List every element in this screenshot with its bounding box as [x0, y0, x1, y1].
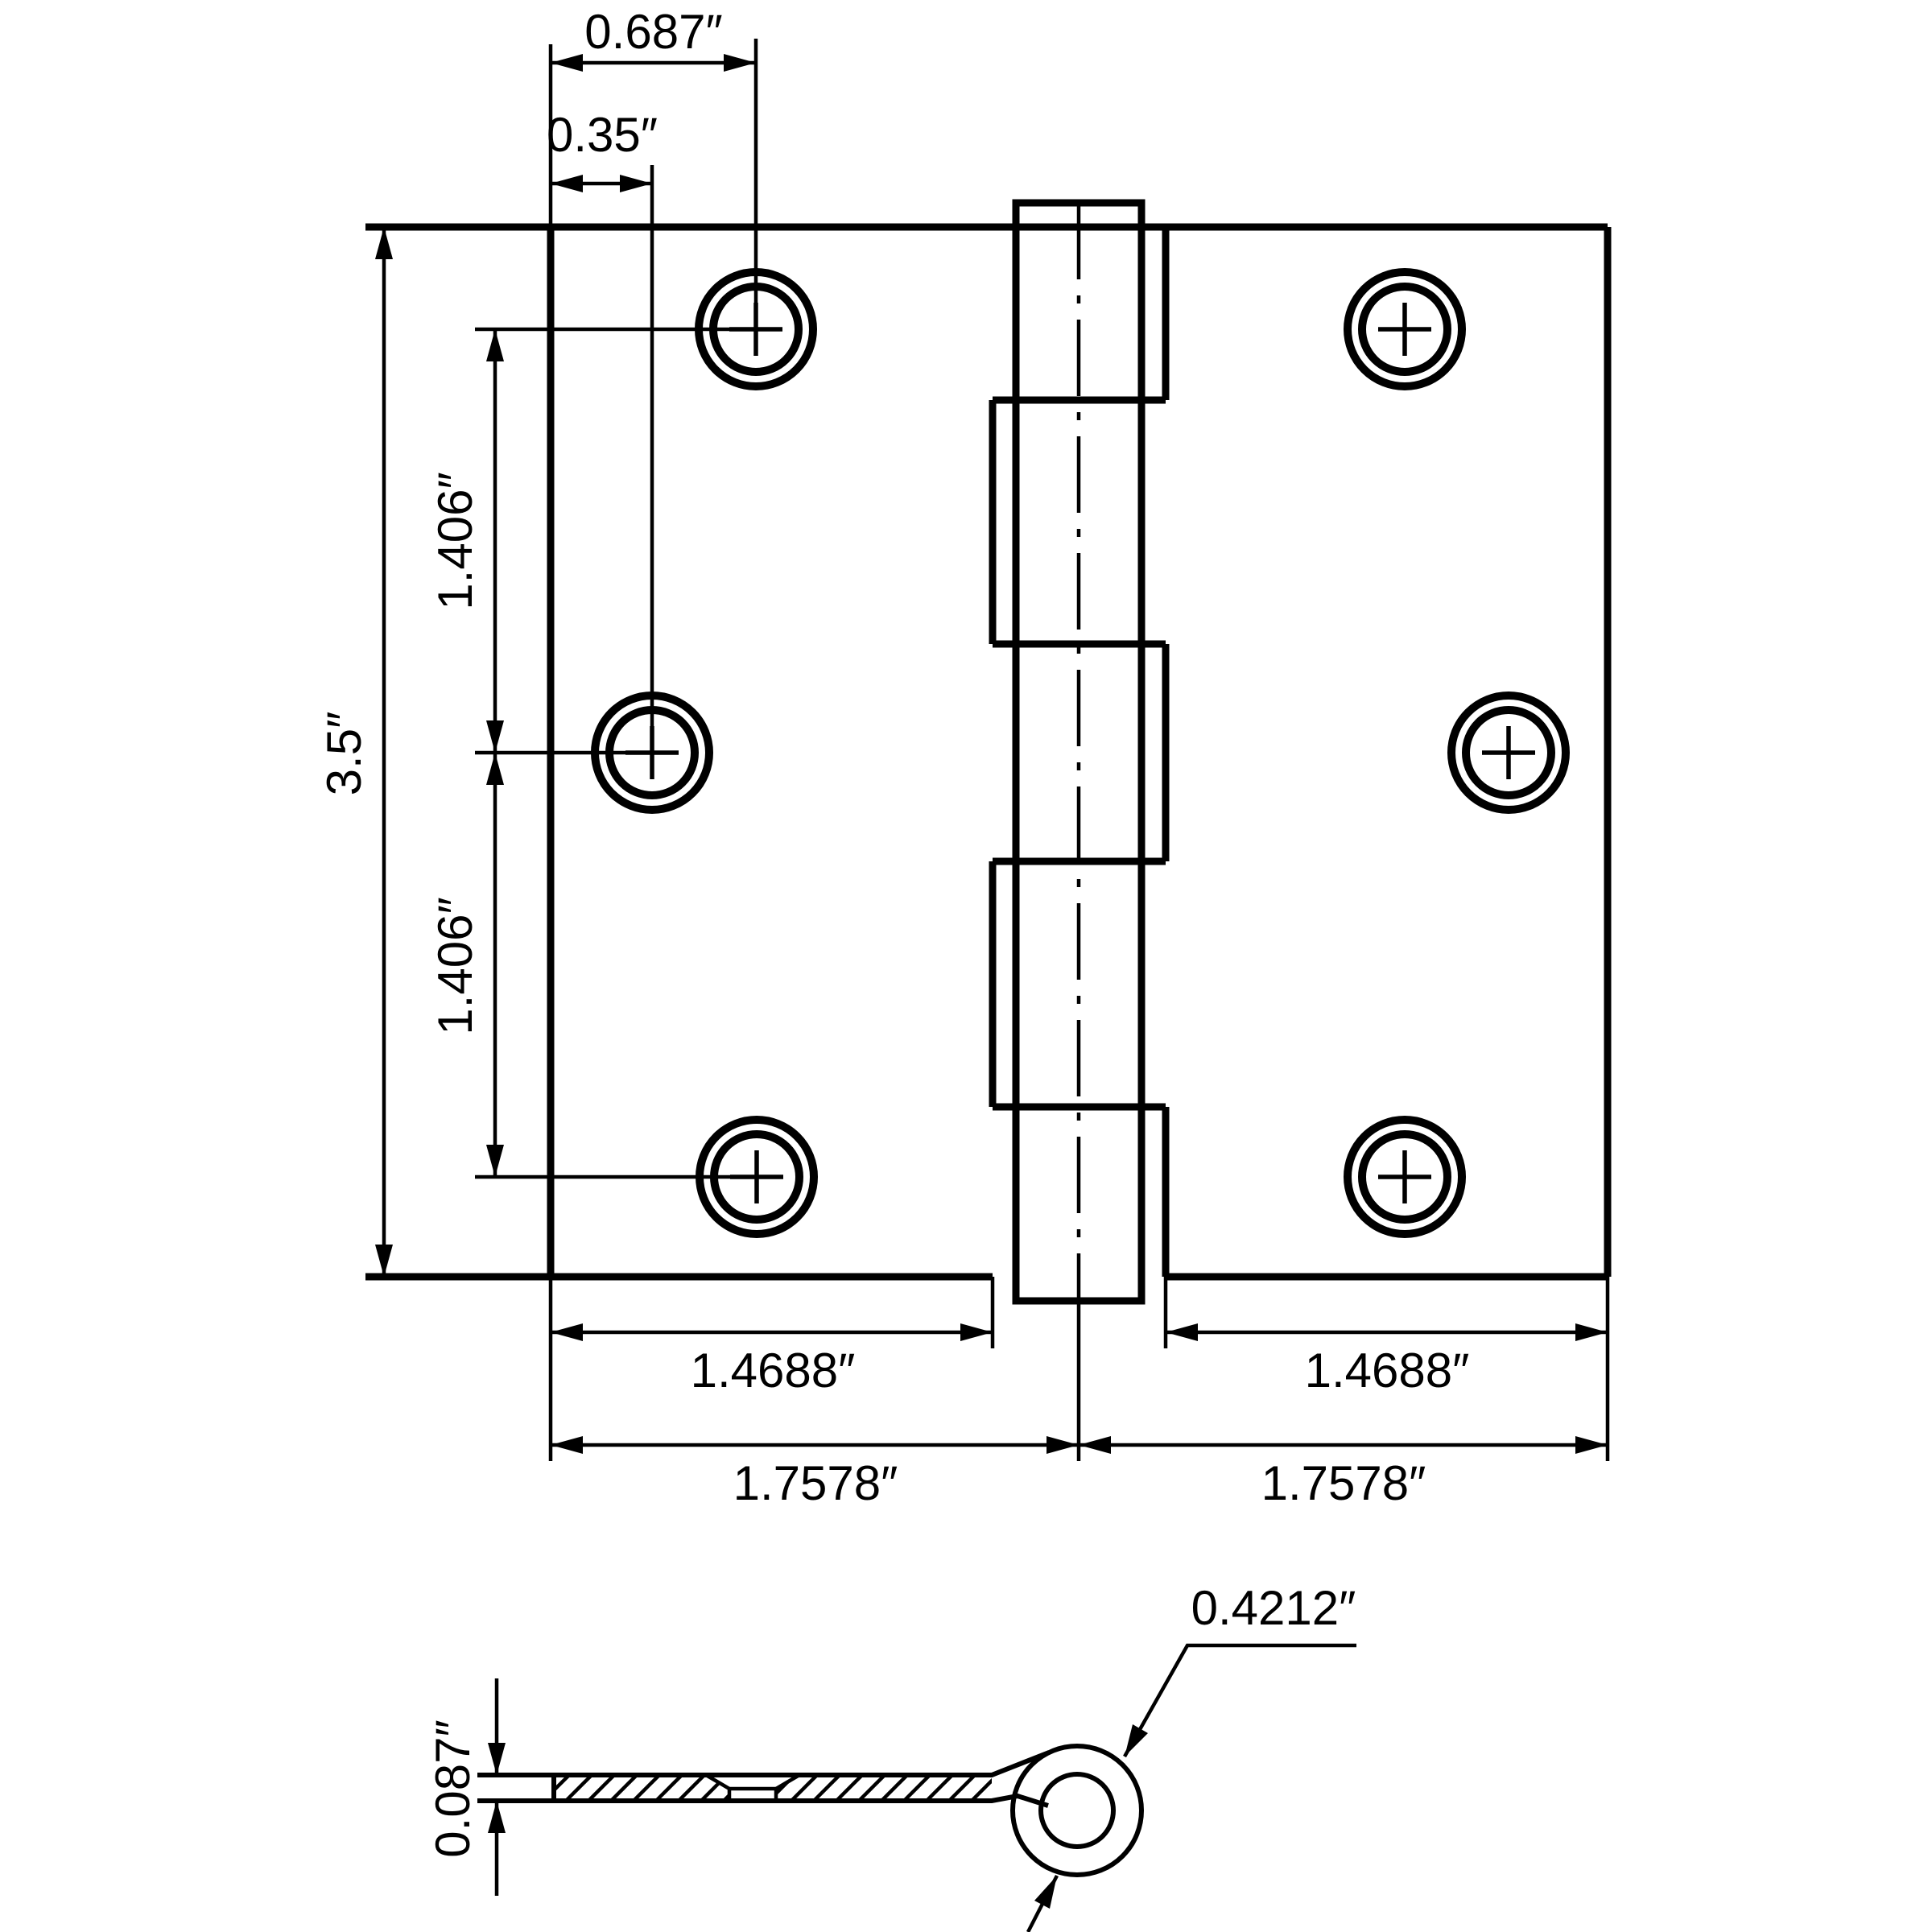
dimension-label-height: 3.5″	[317, 712, 371, 796]
knuckle-barrel	[993, 203, 1166, 1301]
screw-hole-right-middle	[1451, 696, 1566, 810]
section-view: 0.087″ 0.4212″	[426, 1581, 1356, 1932]
knuckle-eye	[1013, 1746, 1141, 1875]
dimension-screw-spacing: 1.406″ 1.406″	[428, 329, 783, 1177]
dimension-screw-offset-middle: 0.35″	[547, 108, 658, 779]
bottom-leader	[1028, 1876, 1057, 1932]
dimension-label-leaf-width-right: 1.4688″	[1305, 1344, 1470, 1397]
dimension-label-spacing-lower: 1.406″	[428, 897, 482, 1034]
dimension-height: 3.5″	[317, 227, 393, 1277]
dimension-label-half-width-left: 1.7578″	[733, 1456, 898, 1510]
dimension-label-leaf-width-left: 1.4688″	[691, 1344, 856, 1397]
dimension-label-knuckle-diameter: 0.4212″	[1191, 1581, 1356, 1635]
screw-hole-right-bottom	[1348, 1120, 1462, 1234]
dimension-label-thickness: 0.087″	[426, 1719, 480, 1857]
dimension-label-screw-offset-top: 0.687″	[584, 5, 722, 59]
technical-drawing: 0.687″ 0.35″ 3.5″ 1.406″	[0, 0, 1932, 1932]
dimension-thickness: 0.087″	[426, 1678, 506, 1896]
dimension-label-half-width-right: 1.7578″	[1261, 1456, 1426, 1510]
screw-hole-right-top	[1348, 272, 1462, 386]
dimension-knuckle-diameter: 0.4212″	[1125, 1581, 1356, 1757]
dimension-widths: 1.4688″ 1.4688″ 1.7578″ 1.7578″	[551, 1277, 1608, 1510]
front-view: 0.687″ 0.35″ 3.5″ 1.406″	[317, 5, 1608, 1510]
dimension-label-screw-offset-middle: 0.35″	[547, 108, 658, 162]
dimension-label-spacing-upper: 1.406″	[428, 472, 482, 609]
